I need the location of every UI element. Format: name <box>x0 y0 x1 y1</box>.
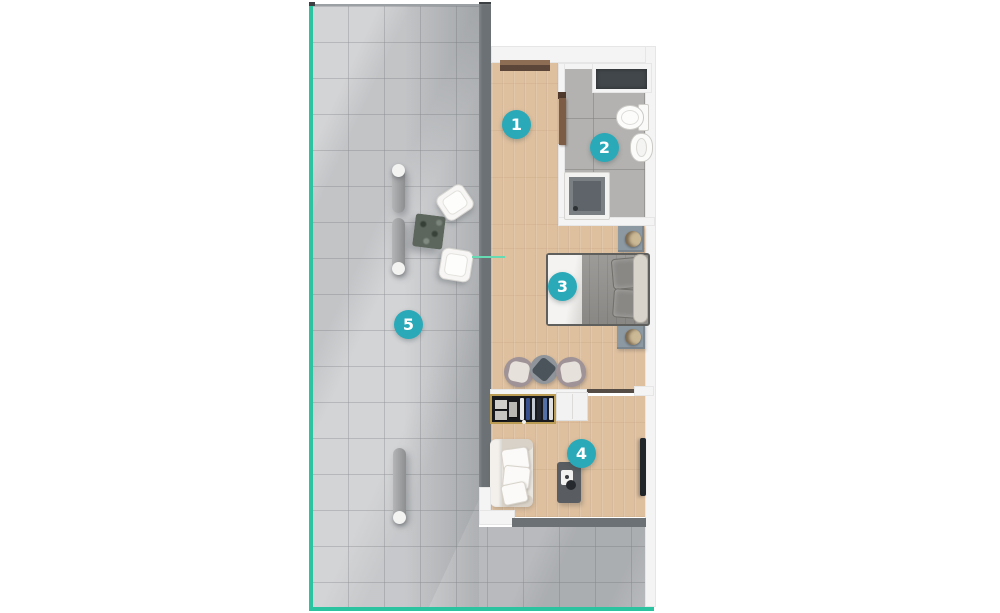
tv <box>640 438 646 496</box>
wardrobe <box>490 394 556 424</box>
terrace-border-left <box>309 4 313 611</box>
shower-drain <box>573 206 578 211</box>
sideboard <box>556 392 588 421</box>
column-cap <box>392 164 405 177</box>
pouf-right <box>556 357 586 387</box>
shower <box>564 172 610 220</box>
entry-door <box>500 60 550 71</box>
outdoor-table <box>412 213 446 249</box>
section-marker-line <box>472 256 505 258</box>
folded-clothes <box>509 402 517 417</box>
bed-headboard <box>633 254 648 323</box>
marker-number: 2 <box>599 140 610 156</box>
lamp <box>625 231 641 247</box>
column-cap <box>392 262 405 275</box>
coffee-table <box>557 462 581 503</box>
bathroom-niche <box>596 69 647 89</box>
pouf-cushion <box>531 356 557 382</box>
sliding-partition <box>587 389 640 393</box>
wardrobe-knob <box>522 420 526 424</box>
bowl <box>566 480 576 490</box>
folded-clothes <box>495 400 507 409</box>
hanging-clothes <box>520 398 553 420</box>
nightstand-bottom <box>617 324 645 349</box>
terrace-bottom-shadow2 <box>479 527 646 607</box>
marker-living-area[interactable]: 4 <box>567 439 596 468</box>
lamp <box>625 329 641 345</box>
toilet <box>616 105 644 130</box>
wall-living-bottom <box>512 518 646 527</box>
sofa-backrest <box>490 439 502 507</box>
marker-number: 5 <box>403 317 414 333</box>
wall-corner-horizontal <box>479 510 515 525</box>
terrace-border-bottom <box>309 607 654 611</box>
terrace-floor-bottom <box>479 527 646 607</box>
marker-bathroom[interactable]: 2 <box>590 133 619 162</box>
terrace-top-line <box>312 4 479 6</box>
pouf-middle <box>530 355 558 384</box>
pouf-cushion <box>507 360 531 384</box>
corner-tick-left <box>309 2 315 6</box>
marker-number: 1 <box>511 117 522 133</box>
shower-tray <box>569 177 605 215</box>
outdoor-chair-bottom <box>438 247 475 284</box>
bathroom-door-leaf <box>559 98 566 145</box>
marker-hallway[interactable]: 1 <box>502 110 531 139</box>
floor-plan: 1 2 3 4 5 <box>0 0 1000 613</box>
divider-wall-stub <box>634 386 654 396</box>
sink <box>630 133 653 162</box>
sofa <box>490 439 533 507</box>
pouf-cushion <box>559 360 582 383</box>
column-cap <box>393 511 406 524</box>
folded-clothes <box>495 411 507 420</box>
hallway-floor <box>491 63 558 225</box>
marker-terrace[interactable]: 5 <box>394 310 423 339</box>
nightstand-top <box>618 226 644 252</box>
marker-number: 4 <box>576 446 587 462</box>
marker-number: 3 <box>557 279 568 295</box>
marker-bedroom[interactable]: 3 <box>548 272 577 301</box>
